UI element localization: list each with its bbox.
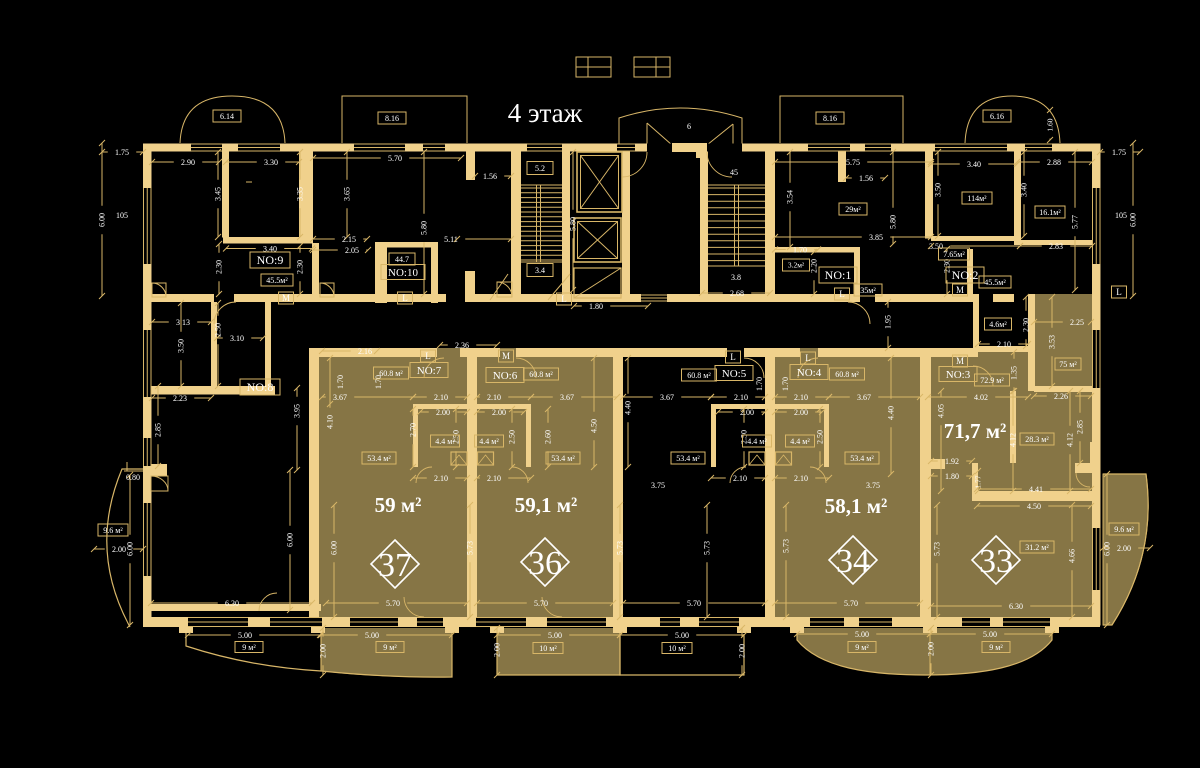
svg-text:9 м²: 9 м² [383, 643, 397, 652]
svg-text:1.80: 1.80 [945, 472, 959, 481]
svg-text:53.4 м²: 53.4 м² [850, 454, 874, 463]
svg-text:2.70: 2.70 [408, 423, 417, 437]
svg-text:M: M [282, 293, 290, 303]
svg-text:3.67: 3.67 [560, 393, 574, 402]
svg-text:3.67: 3.67 [857, 393, 871, 402]
svg-text:45.5м²: 45.5м² [984, 278, 1006, 287]
svg-text:NO:10: NO:10 [388, 267, 418, 279]
svg-text:L: L [402, 293, 408, 303]
svg-text:60.8 м²: 60.8 м² [529, 370, 553, 379]
svg-text:2.25: 2.25 [1070, 318, 1084, 327]
svg-text:6.16: 6.16 [990, 112, 1004, 121]
svg-text:4.40: 4.40 [886, 406, 895, 420]
svg-text:M: M [956, 285, 964, 295]
svg-text:75 м²: 75 м² [1059, 360, 1077, 369]
svg-text:5.70: 5.70 [386, 599, 400, 608]
svg-text:2.15: 2.15 [342, 235, 356, 244]
svg-text:3.35: 3.35 [295, 187, 304, 201]
svg-text:3.30: 3.30 [264, 158, 278, 167]
svg-text:60.8 м²: 60.8 м² [687, 371, 711, 380]
svg-text:10 м²: 10 м² [539, 644, 557, 653]
svg-text:5.70: 5.70 [687, 599, 701, 608]
svg-text:6.00: 6.00 [285, 533, 294, 547]
svg-text:3.50: 3.50 [933, 183, 942, 197]
svg-text:3.65: 3.65 [342, 187, 351, 201]
svg-text:4.4 м²: 4.4 м² [435, 437, 455, 446]
svg-text:6.14: 6.14 [220, 112, 234, 121]
svg-text:2.30: 2.30 [1021, 318, 1030, 332]
svg-text:2.50: 2.50 [507, 430, 516, 444]
svg-text:L: L [730, 352, 736, 362]
svg-text:1.56: 1.56 [483, 172, 497, 181]
svg-text:4.10: 4.10 [325, 415, 334, 429]
svg-text:8.16: 8.16 [385, 114, 399, 123]
svg-text:2.83: 2.83 [1049, 242, 1063, 251]
svg-text:NO:5: NO:5 [722, 368, 747, 380]
svg-text:10 м²: 10 м² [668, 644, 686, 653]
svg-text:NO:7: NO:7 [417, 365, 442, 377]
svg-text:6.30: 6.30 [225, 599, 239, 608]
svg-text:5.80: 5.80 [888, 215, 897, 229]
svg-text:1.75: 1.75 [1112, 148, 1126, 157]
svg-text:1.35: 1.35 [1009, 366, 1018, 380]
svg-text:6.00: 6.00 [1102, 542, 1111, 556]
svg-text:53.4 м²: 53.4 м² [551, 454, 575, 463]
svg-text:9 м²: 9 м² [855, 643, 869, 652]
svg-text:5.70: 5.70 [844, 599, 858, 608]
svg-text:9.6 м²: 9.6 м² [103, 526, 123, 535]
svg-text:5.00: 5.00 [675, 631, 689, 640]
svg-text:3.95: 3.95 [292, 404, 301, 418]
svg-text:5.73: 5.73 [465, 541, 474, 555]
svg-text:NO:9: NO:9 [257, 253, 284, 267]
svg-text:2.05: 2.05 [345, 246, 359, 255]
svg-text:NO:2: NO:2 [952, 268, 979, 282]
svg-text:3.40: 3.40 [967, 160, 981, 169]
svg-text:NO:6: NO:6 [493, 370, 518, 382]
svg-text:2.90: 2.90 [181, 158, 195, 167]
svg-text:1.60: 1.60 [1045, 118, 1054, 131]
svg-text:9.6 м²: 9.6 м² [1114, 525, 1134, 534]
svg-text:2.10: 2.10 [734, 393, 748, 402]
svg-text:3.50: 3.50 [176, 339, 185, 353]
svg-text:1.70: 1.70 [755, 377, 764, 391]
svg-text:5.70: 5.70 [534, 599, 548, 608]
svg-text:M: M [502, 351, 510, 361]
svg-text:2.36: 2.36 [455, 341, 469, 350]
svg-text:2.10: 2.10 [794, 393, 808, 402]
svg-text:2.10: 2.10 [794, 474, 808, 483]
svg-text:1.70: 1.70 [793, 245, 807, 254]
svg-text:34: 34 [836, 543, 870, 580]
svg-text:4.50: 4.50 [1027, 502, 1041, 511]
svg-text:45: 45 [730, 168, 738, 177]
svg-text:2.85: 2.85 [1075, 420, 1084, 434]
svg-text:28.3 м²: 28.3 м² [1025, 435, 1049, 444]
svg-text:3.10: 3.10 [230, 334, 244, 343]
svg-text:33: 33 [979, 543, 1013, 580]
svg-text:2.85: 2.85 [153, 423, 162, 437]
svg-text:M: M [956, 356, 964, 366]
svg-text:114м²: 114м² [967, 194, 987, 203]
svg-text:2.16: 2.16 [358, 347, 372, 356]
svg-text:5.73: 5.73 [615, 541, 624, 555]
svg-text:3.4: 3.4 [535, 266, 545, 275]
svg-text:4.12: 4.12 [1065, 433, 1074, 447]
svg-text:2.00: 2.00 [112, 545, 126, 554]
svg-text:36: 36 [528, 545, 562, 582]
svg-text:5.00: 5.00 [548, 631, 562, 640]
svg-text:2.30: 2.30 [942, 259, 951, 273]
svg-text:2.10: 2.10 [487, 474, 501, 483]
svg-text:5.73: 5.73 [702, 541, 711, 555]
svg-text:105: 105 [116, 211, 128, 220]
svg-text:3.2м²: 3.2м² [788, 261, 805, 270]
svg-text:72.9 м²: 72.9 м² [980, 376, 1004, 385]
svg-text:35м²: 35м² [860, 286, 876, 295]
svg-text:7.65м²: 7.65м² [943, 250, 965, 259]
svg-text:3.75: 3.75 [866, 481, 880, 490]
svg-text:2.26: 2.26 [1054, 392, 1068, 401]
svg-text:1.56: 1.56 [859, 174, 873, 183]
svg-text:2.10: 2.10 [487, 393, 501, 402]
svg-text:5.75: 5.75 [846, 158, 860, 167]
svg-text:4.4 м²: 4.4 м² [479, 437, 499, 446]
svg-text:5.11: 5.11 [444, 235, 458, 244]
svg-text:5.73: 5.73 [932, 542, 941, 556]
svg-text:4.02: 4.02 [974, 393, 988, 402]
svg-text:37: 37 [378, 547, 412, 584]
svg-text:59 м²: 59 м² [375, 493, 422, 517]
svg-text:3.54: 3.54 [785, 190, 794, 204]
svg-text:1.70: 1.70 [336, 375, 345, 389]
svg-text:29м²: 29м² [845, 205, 861, 214]
svg-text:4.40: 4.40 [623, 401, 632, 415]
svg-text:L: L [1116, 287, 1122, 297]
svg-text:1.77: 1.77 [973, 475, 982, 488]
svg-text:31.2 м²: 31.2 м² [1025, 543, 1049, 552]
svg-text:2.00: 2.00 [318, 644, 327, 658]
svg-text:5.80: 5.80 [568, 217, 577, 231]
svg-text:5.00: 5.00 [983, 630, 997, 639]
svg-text:2.00: 2.00 [1117, 544, 1131, 553]
svg-text:2.68: 2.68 [730, 289, 744, 298]
svg-text:4.05: 4.05 [936, 404, 945, 418]
svg-text:L: L [805, 353, 811, 363]
svg-text:45.5м²: 45.5м² [266, 276, 288, 285]
svg-text:2.30: 2.30 [295, 260, 304, 274]
svg-text:2.10: 2.10 [434, 393, 448, 402]
svg-text:1.92: 1.92 [945, 457, 959, 466]
svg-text:2.50: 2.50 [213, 323, 222, 337]
svg-text:NO:8: NO:8 [247, 380, 274, 394]
svg-text:60.8 м²: 60.8 м² [835, 370, 859, 379]
svg-text:2.00: 2.00 [926, 642, 935, 656]
svg-text:3.53: 3.53 [1047, 335, 1056, 349]
svg-text:5.77: 5.77 [1070, 215, 1079, 229]
svg-text:4.6м²: 4.6м² [989, 320, 1007, 329]
svg-text:5.2: 5.2 [535, 164, 545, 173]
svg-text:0.80: 0.80 [126, 473, 140, 482]
svg-text:5.00: 5.00 [855, 630, 869, 639]
svg-text:L: L [561, 294, 567, 304]
svg-text:2.00: 2.00 [492, 408, 506, 417]
svg-text:1.75: 1.75 [115, 148, 129, 157]
svg-text:2.00: 2.00 [737, 644, 746, 658]
svg-text:1.70: 1.70 [781, 377, 790, 391]
svg-text:4.41: 4.41 [1029, 485, 1043, 494]
svg-text:2.23: 2.23 [173, 394, 187, 403]
svg-text:2.00: 2.00 [436, 408, 450, 417]
svg-text:3.85: 3.85 [869, 233, 883, 242]
svg-text:4.12: 4.12 [1008, 433, 1017, 447]
svg-text:3.13: 3.13 [176, 318, 190, 327]
svg-text:58,1 м²: 58,1 м² [825, 494, 888, 518]
svg-text:3.75: 3.75 [651, 481, 665, 490]
svg-text:NO:1: NO:1 [825, 268, 852, 282]
svg-text:60.8 м²: 60.8 м² [379, 369, 403, 378]
svg-text:5.70: 5.70 [388, 154, 402, 163]
svg-text:L: L [425, 351, 431, 361]
svg-text:105: 105 [1115, 211, 1127, 220]
svg-text:NO:3: NO:3 [946, 369, 971, 381]
svg-text:1.95: 1.95 [883, 315, 892, 329]
svg-text:2.60: 2.60 [543, 430, 552, 444]
svg-text:2.10: 2.10 [997, 340, 1011, 349]
svg-text:53.4 м²: 53.4 м² [367, 454, 391, 463]
svg-text:NO:4: NO:4 [797, 367, 822, 379]
svg-text:5.00: 5.00 [365, 631, 379, 640]
svg-text:3.8: 3.8 [731, 273, 741, 282]
svg-text:5.73: 5.73 [781, 539, 790, 553]
svg-text:53.4 м²: 53.4 м² [676, 454, 700, 463]
svg-text:6.00: 6.00 [125, 542, 134, 556]
svg-text:2.30: 2.30 [214, 260, 223, 274]
svg-text:5.00: 5.00 [238, 631, 252, 640]
svg-text:2.00: 2.00 [492, 643, 501, 657]
svg-text:2.88: 2.88 [1047, 158, 1061, 167]
svg-text:6.00: 6.00 [97, 213, 106, 227]
svg-text:L: L [839, 289, 845, 299]
svg-text:5.80: 5.80 [419, 221, 428, 235]
svg-text:16.1м²: 16.1м² [1039, 208, 1061, 217]
svg-text:2.00: 2.00 [794, 408, 808, 417]
svg-text:1.80: 1.80 [589, 302, 603, 311]
svg-text:71,7 м²: 71,7 м² [944, 419, 1007, 443]
svg-text:2.00: 2.00 [740, 408, 754, 417]
svg-text:3.67: 3.67 [660, 393, 674, 402]
svg-text:4.4 м²: 4.4 м² [747, 437, 767, 446]
svg-text:4.66: 4.66 [1067, 549, 1076, 563]
svg-text:2.10: 2.10 [733, 474, 747, 483]
svg-text:2.10: 2.10 [434, 474, 448, 483]
svg-text:2.20: 2.20 [809, 259, 818, 273]
svg-text:4.4 м²: 4.4 м² [790, 437, 810, 446]
svg-text:6.00: 6.00 [1128, 213, 1137, 227]
svg-text:9 м²: 9 м² [242, 643, 256, 652]
svg-text:9 м²: 9 м² [989, 643, 1003, 652]
svg-text:8.16: 8.16 [823, 114, 837, 123]
svg-text:4 этаж: 4 этаж [508, 98, 583, 128]
svg-text:44.7: 44.7 [395, 255, 409, 264]
svg-text:3.40: 3.40 [1019, 183, 1028, 197]
svg-text:6: 6 [687, 122, 691, 131]
svg-text:6.00: 6.00 [329, 541, 338, 555]
svg-text:6.30: 6.30 [1009, 602, 1023, 611]
svg-text:59,1 м²: 59,1 м² [515, 493, 578, 517]
svg-text:3.45: 3.45 [213, 187, 222, 201]
svg-text:4.50: 4.50 [589, 419, 598, 433]
svg-text:2.50: 2.50 [815, 430, 824, 444]
svg-text:3.67: 3.67 [333, 393, 347, 402]
